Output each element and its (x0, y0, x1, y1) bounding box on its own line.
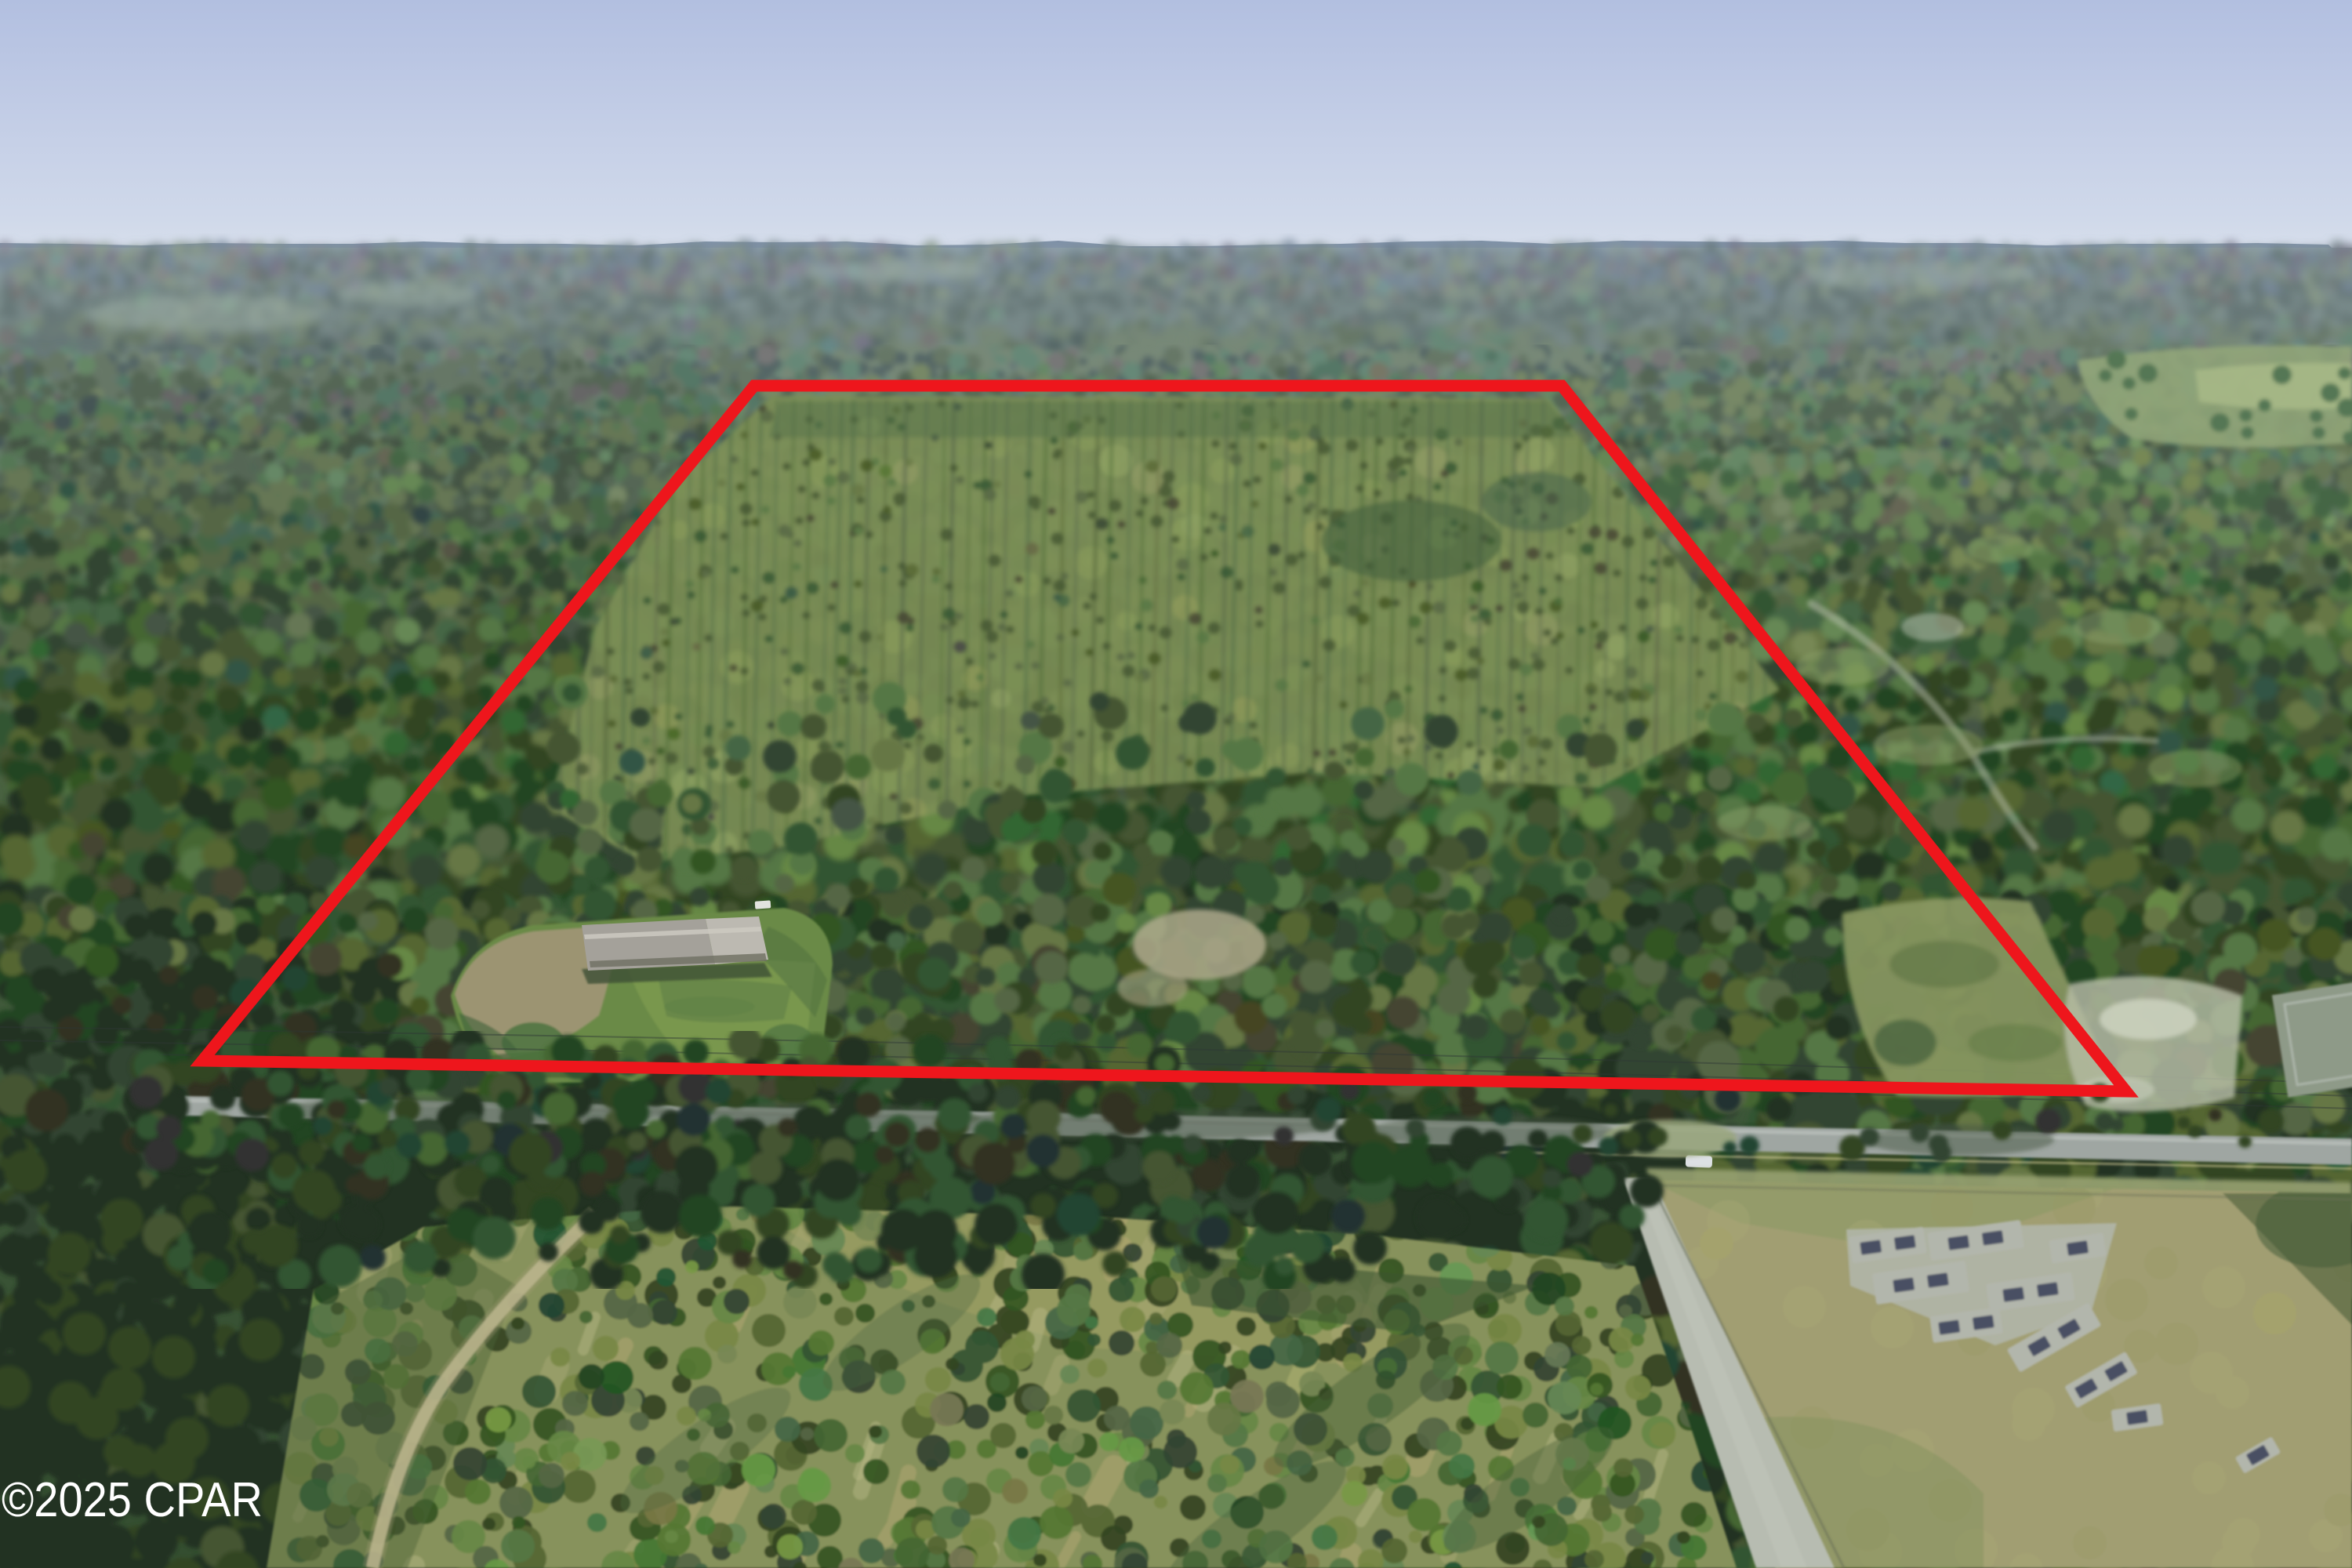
svg-text:©2025 CPAR: ©2025 CPAR (2, 1473, 263, 1527)
